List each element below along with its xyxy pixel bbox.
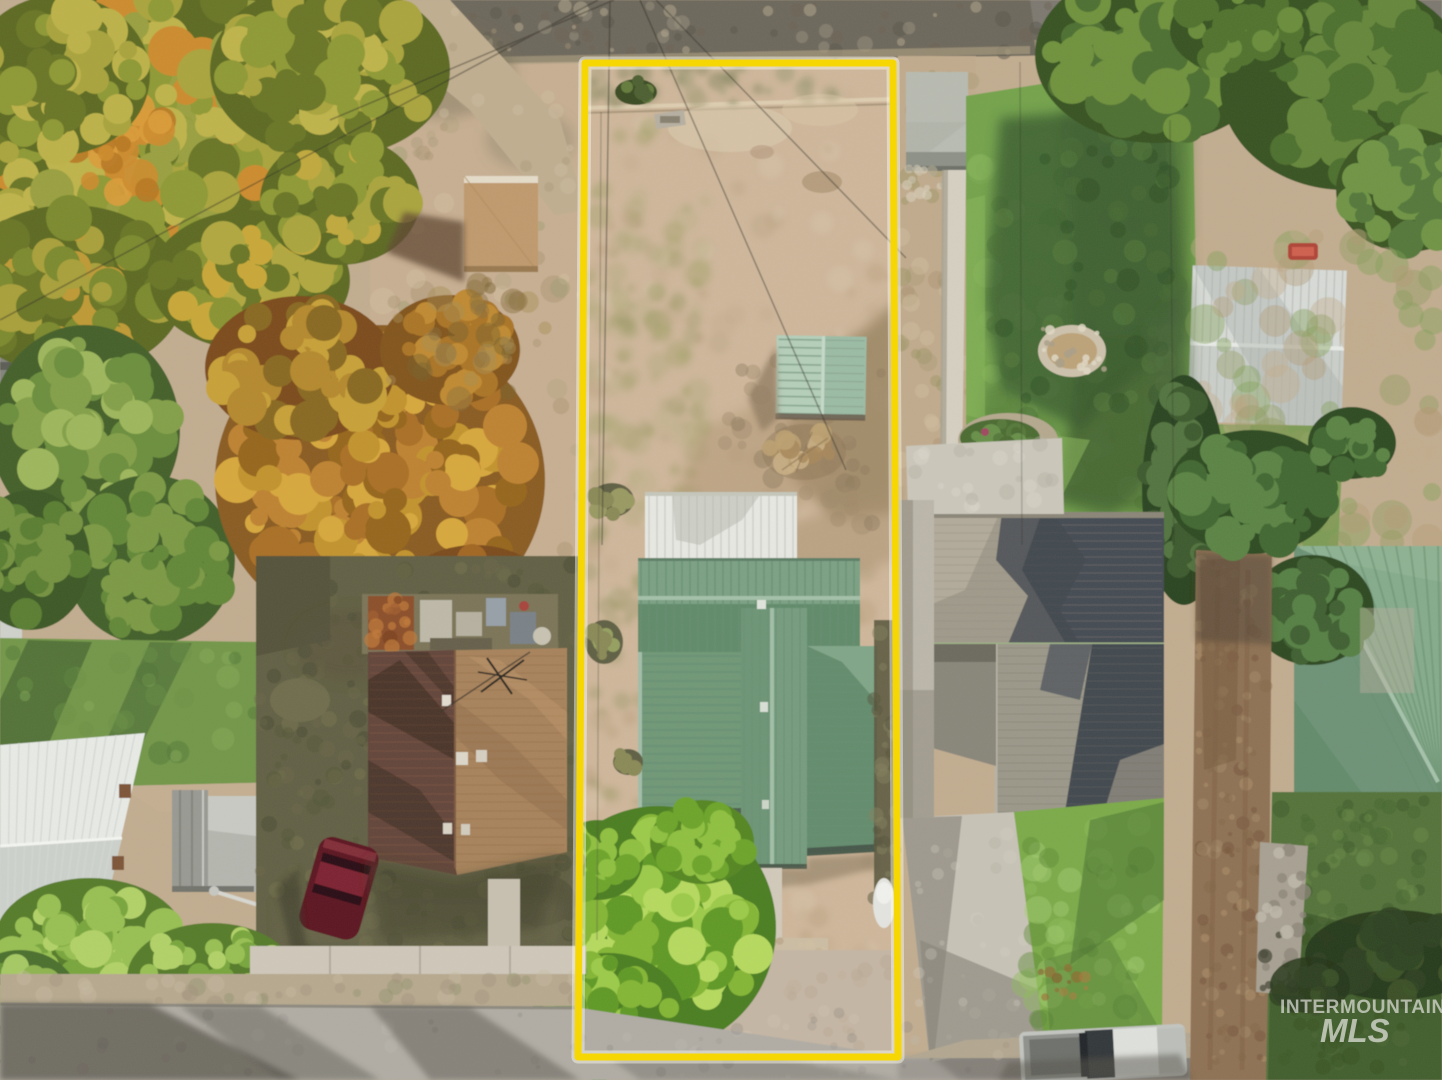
svg-text:MLS: MLS xyxy=(1320,1012,1390,1049)
